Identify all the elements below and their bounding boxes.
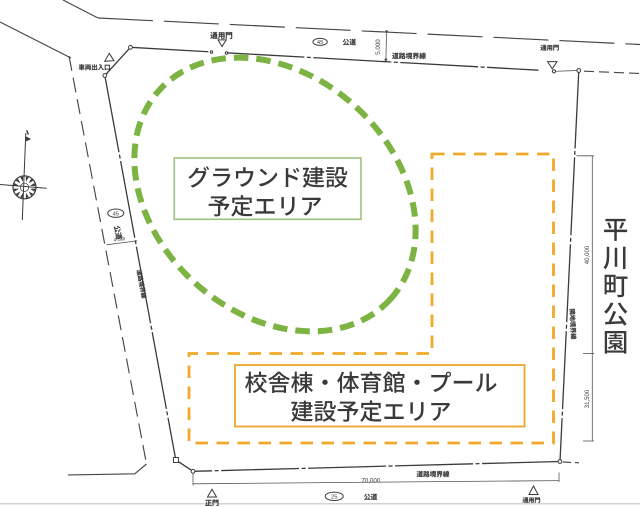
svg-text:70,000: 70,000 <box>361 477 380 484</box>
svg-text:5,000: 5,000 <box>375 39 382 55</box>
svg-text:31,500: 31,500 <box>585 389 591 408</box>
svg-text:45: 45 <box>317 40 323 46</box>
svg-text:45: 45 <box>113 212 119 218</box>
svg-text:25: 25 <box>331 495 337 501</box>
svg-text:40,000: 40,000 <box>585 245 591 264</box>
